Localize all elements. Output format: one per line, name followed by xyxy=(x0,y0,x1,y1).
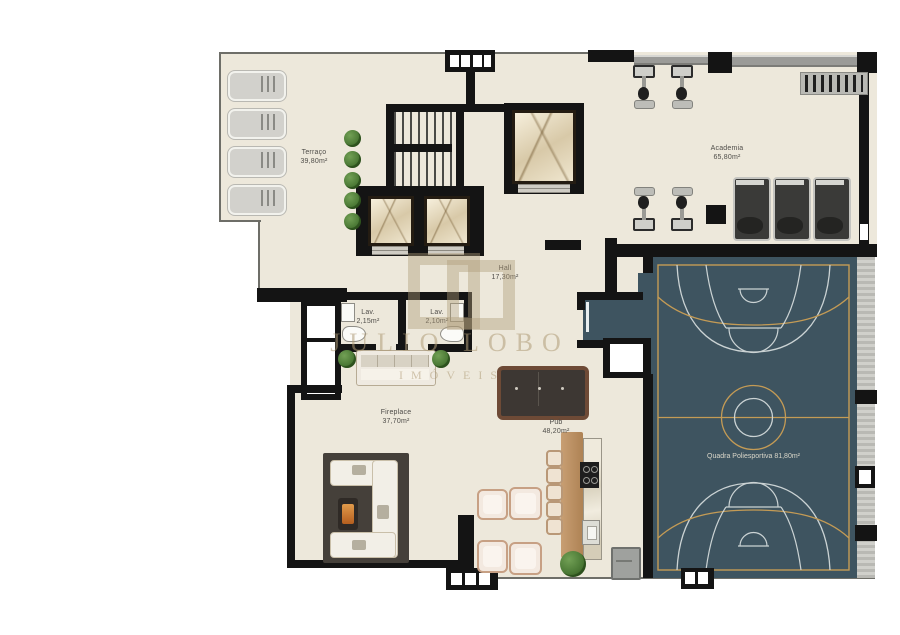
bush-plant xyxy=(344,151,361,168)
wall xyxy=(456,104,464,192)
pool-table xyxy=(497,366,589,420)
bar-stool xyxy=(546,450,563,467)
exercise-bike xyxy=(631,187,657,232)
bar-stool xyxy=(546,484,563,501)
parapet xyxy=(258,220,260,290)
room-name: Fireplace xyxy=(381,409,412,416)
wall xyxy=(643,257,653,273)
window-pane xyxy=(860,224,868,240)
cooktop xyxy=(580,462,599,488)
bar-stool xyxy=(546,518,563,535)
armchair xyxy=(477,489,508,520)
room-name: Terraço xyxy=(302,149,327,156)
wall xyxy=(577,292,585,310)
court-alcove xyxy=(610,344,643,372)
treadmill xyxy=(773,177,811,241)
lounge-chair xyxy=(228,147,286,177)
wall xyxy=(577,292,643,300)
brand-logo-icon xyxy=(447,260,515,330)
lounge-chair xyxy=(228,185,286,215)
watermark-subtitle: IMÓVEIS xyxy=(399,368,505,383)
room-name: Pub xyxy=(549,419,562,426)
cushion xyxy=(377,505,389,519)
elevator-door xyxy=(518,184,570,193)
parapet xyxy=(219,52,221,222)
bush-plant xyxy=(344,213,361,230)
floor-plan: Quadra Poliesportiva 81,80m² xyxy=(0,0,900,635)
sink xyxy=(341,303,355,322)
treadmill xyxy=(733,177,771,241)
window-pane xyxy=(450,55,459,67)
exercise-bike xyxy=(669,187,695,232)
room-label-fireplace: Fireplace 37,70m² xyxy=(381,408,412,426)
armchair xyxy=(509,487,542,520)
room-name: Academia xyxy=(711,145,744,152)
potted-plant xyxy=(560,551,586,577)
elevator-door xyxy=(372,246,408,255)
wall xyxy=(287,385,342,393)
court-label: Quadra Poliesportiva 81,80m² xyxy=(707,453,801,460)
stairs xyxy=(394,152,456,188)
basketball-court: Quadra Poliesportiva 81,80m² xyxy=(650,257,857,578)
bush-plant xyxy=(344,172,361,189)
lounge-chair xyxy=(228,71,286,101)
bar-counter xyxy=(561,432,583,558)
fireplace-unit xyxy=(338,498,358,530)
treadmill xyxy=(813,177,851,241)
bush-plant xyxy=(344,130,361,147)
wall xyxy=(577,340,607,348)
room-area: 2,15m² xyxy=(357,318,380,325)
room-area: 48,20m² xyxy=(542,428,569,435)
gym-mat xyxy=(706,205,726,224)
bar-fridge xyxy=(611,547,641,580)
room-name: Lav. xyxy=(361,309,375,316)
wall xyxy=(466,70,475,106)
window-pane xyxy=(451,573,462,585)
door-leaf xyxy=(586,302,589,332)
parapet xyxy=(219,220,261,222)
exercise-bike xyxy=(631,64,657,109)
cushion xyxy=(352,465,366,475)
room-label-terraco: Terraço 39,80m² xyxy=(300,148,327,166)
room-area: 37,70m² xyxy=(382,418,409,425)
elevator-cab xyxy=(368,196,414,246)
wall xyxy=(588,50,634,62)
window xyxy=(855,466,875,488)
bush-plant xyxy=(344,192,361,209)
stair-landing-rail xyxy=(394,144,452,152)
window-pane xyxy=(465,573,476,585)
column xyxy=(708,52,732,73)
elevator-cab xyxy=(512,110,576,184)
wall xyxy=(855,390,877,404)
bar-stool xyxy=(546,467,563,484)
window-pane xyxy=(484,55,491,67)
bar-stool xyxy=(546,501,563,518)
wall xyxy=(610,244,877,257)
watermark-brand: JULIO LOBO xyxy=(330,328,570,358)
lounge-chair xyxy=(228,109,286,139)
exercise-bike xyxy=(669,64,695,109)
parapet xyxy=(219,52,592,54)
room-area: 65,80m² xyxy=(713,154,740,161)
window-pane xyxy=(473,55,482,67)
wall xyxy=(287,385,295,568)
room-label-academia: Academia 65,80m² xyxy=(711,144,744,162)
stairs xyxy=(394,112,456,144)
room-label-lav1: Lav. 2,15m² xyxy=(357,308,380,326)
window-pane xyxy=(685,572,695,584)
window-pane xyxy=(698,572,708,584)
wall xyxy=(855,525,877,541)
wall xyxy=(643,374,653,578)
bar-sink xyxy=(582,520,600,545)
room-area: 39,80m² xyxy=(300,158,327,165)
armchair xyxy=(509,542,542,575)
dumbbell-rack xyxy=(800,72,868,95)
armchair xyxy=(477,540,508,573)
elevator-cab xyxy=(424,196,470,246)
wall xyxy=(545,240,581,250)
cushion xyxy=(352,540,366,550)
window-pane xyxy=(479,573,490,585)
gym-window xyxy=(732,55,857,67)
window-pane xyxy=(461,55,470,67)
room-label-pub: Pub 48,20m² xyxy=(542,418,569,436)
